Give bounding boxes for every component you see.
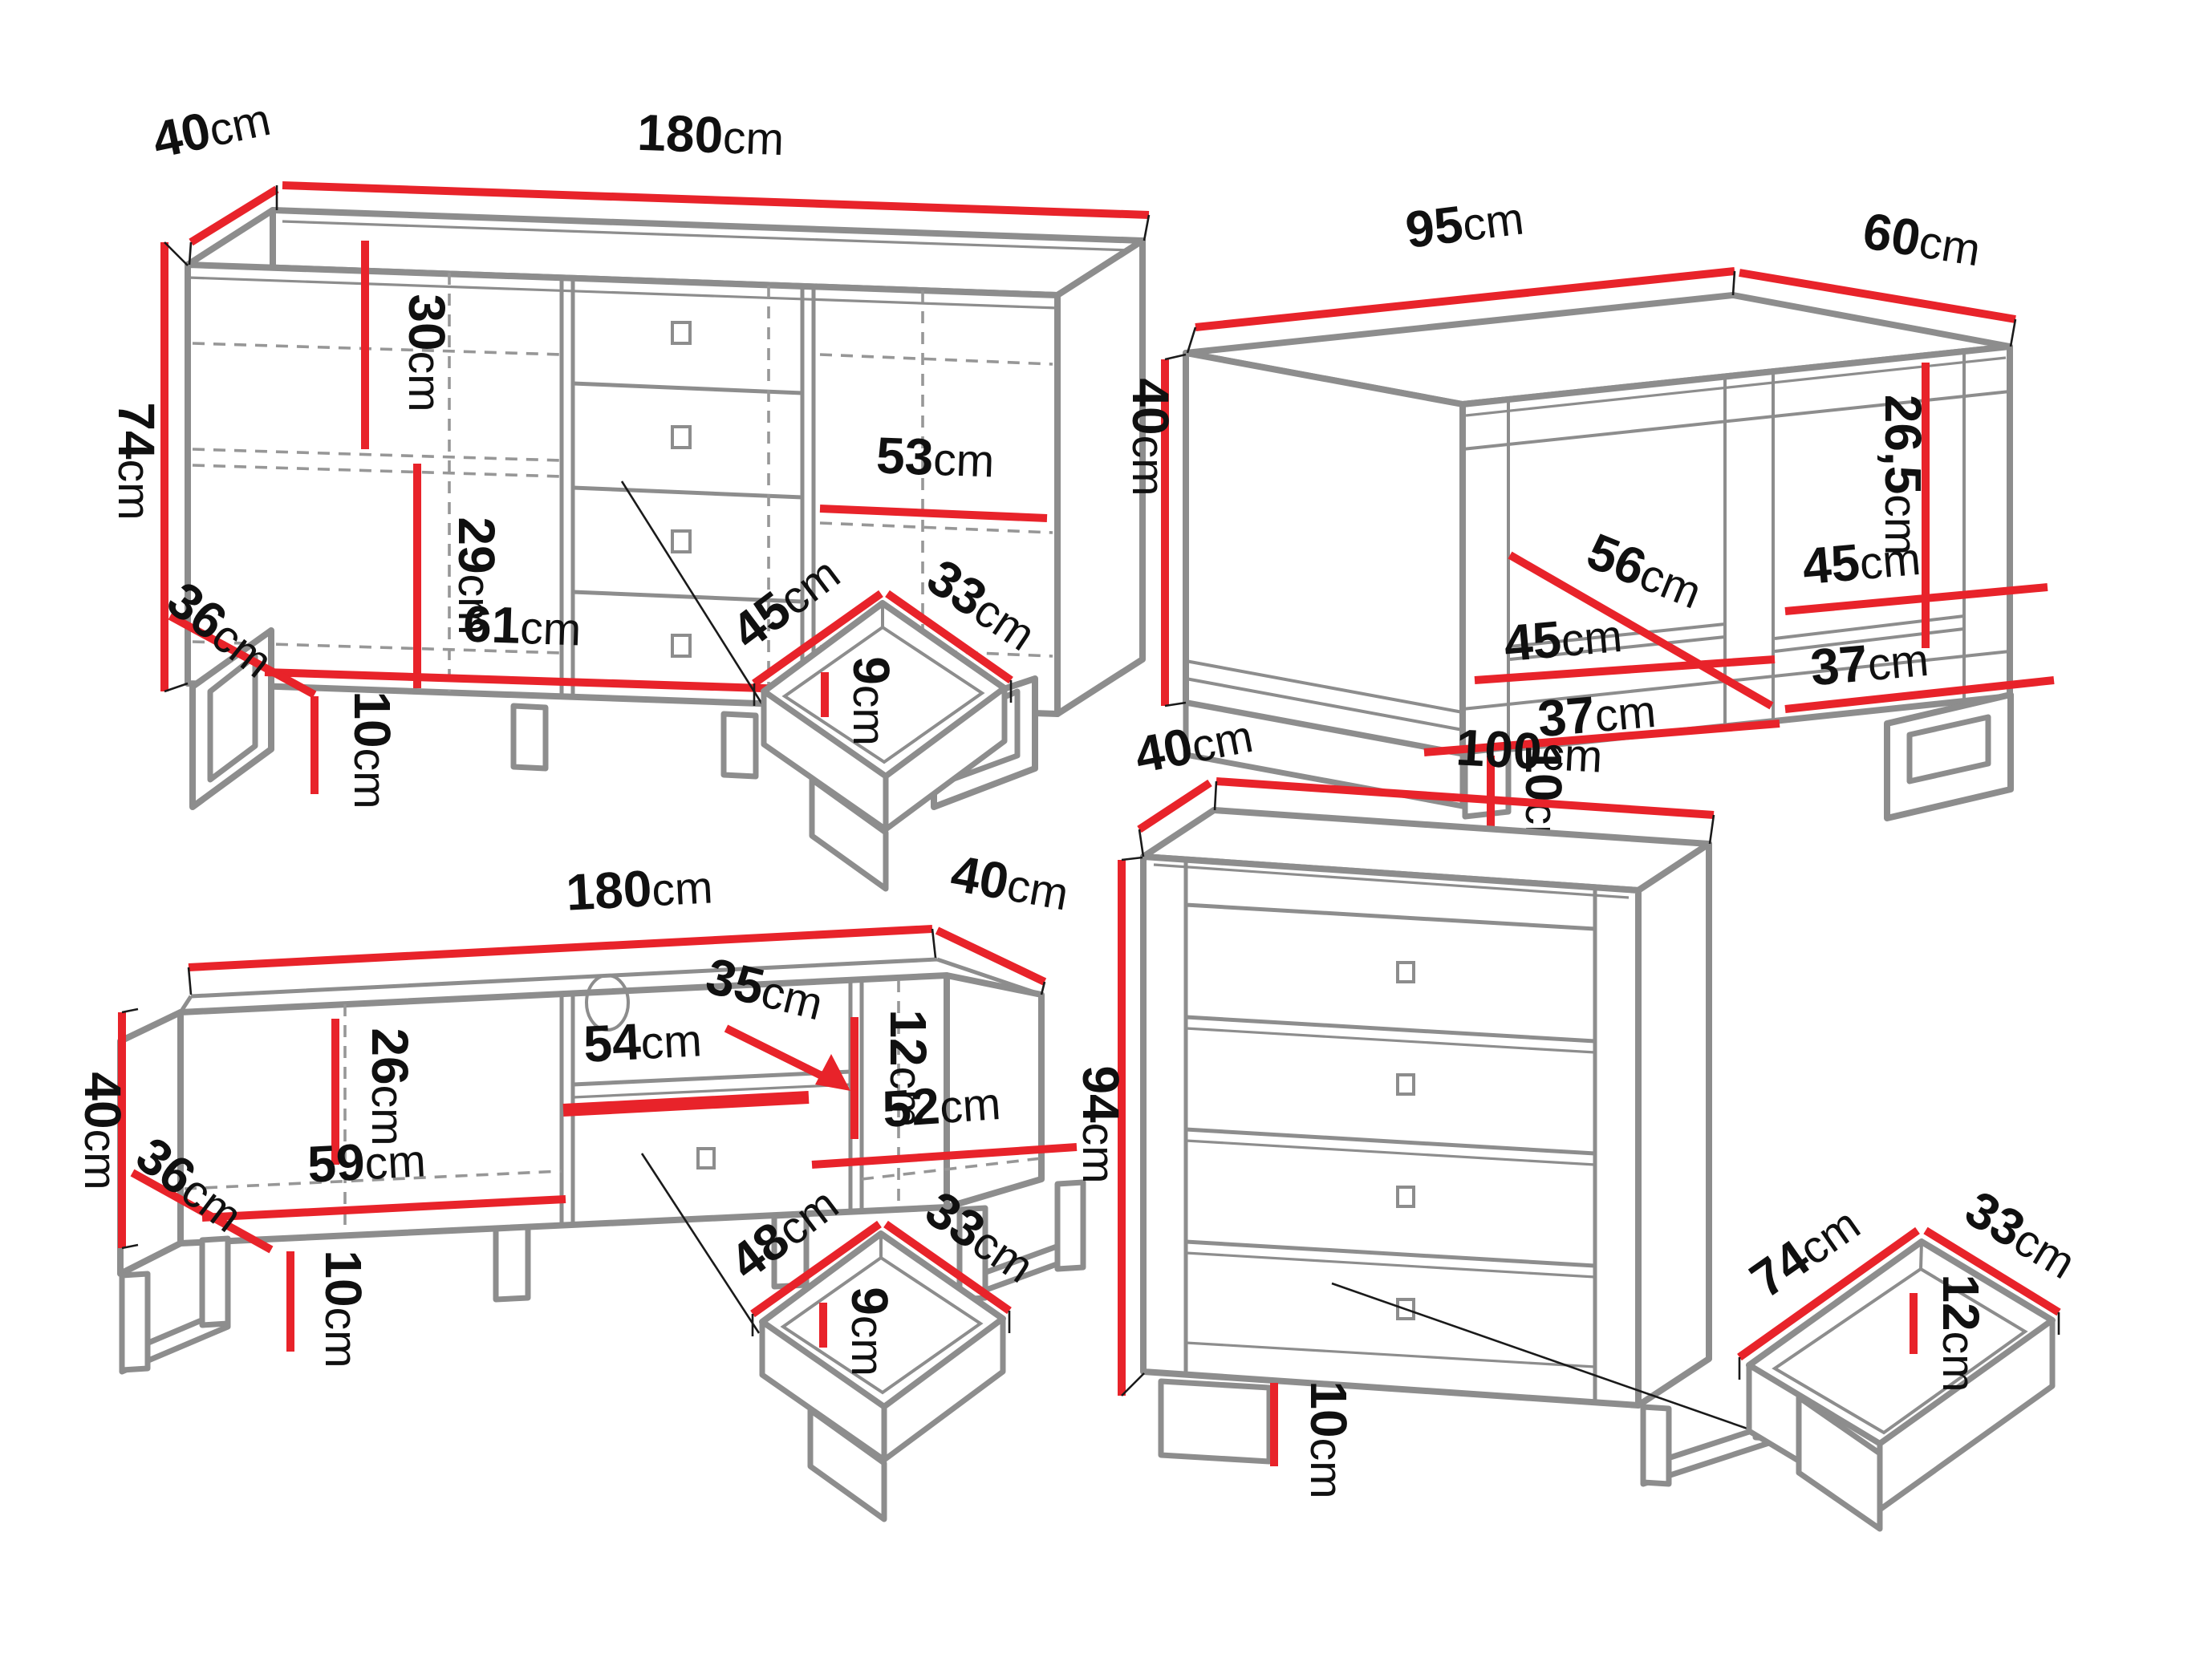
dim-label-sideboard-width: 180cm — [636, 103, 785, 166]
tv-stand-left-sled-post-back — [202, 1238, 228, 1325]
dim-label-chest-height: 94cm — [1072, 1065, 1130, 1183]
dim-label-coffee-right-bottom: 37cm — [1808, 629, 1931, 697]
sideboard-middle-foot-2 — [724, 714, 756, 776]
chest-drawer-handle-2 — [1398, 1075, 1414, 1094]
dim-label-coffee-depth: 60cm — [1859, 201, 1985, 277]
diagram-svg: 40cm 180cm 74cm 30cm 29cm 61cm 36cm 10cm… — [0, 0, 2212, 1658]
dim-label-drawer3-height: 12cm — [1932, 1274, 1990, 1392]
dim-label-coffee-right-shelf: 45cm — [1800, 528, 1923, 596]
dim-label-tv-width: 180cm — [565, 856, 714, 921]
tv-stand-left-sled-post-front — [122, 1274, 148, 1370]
dim-label-coffee-height: 40cm — [1122, 378, 1179, 496]
sideboard-drawer-handle-2 — [672, 427, 690, 448]
dim-label-sideboard-inner-top: 30cm — [398, 294, 456, 411]
furniture-dimensions-diagram: 40cm 180cm 74cm 30cm 29cm 61cm 36cm 10cm… — [0, 0, 2212, 1658]
dim-label-tv-depth: 40cm — [947, 844, 1073, 921]
dim-label-coffee-left-shelf: 45cm — [1502, 605, 1625, 673]
dim-label-chest-leg: 10cm — [1300, 1380, 1358, 1498]
chest-left-foot — [1161, 1381, 1269, 1461]
dim-label-tv-inner-height: 26cm — [361, 1028, 419, 1145]
dim-label-sideboard-shelf: 53cm — [875, 426, 996, 488]
chest-diagram: 40cm 100cm 94cm 10cm — [1072, 705, 1809, 1499]
chest-drawer-handle-3 — [1398, 1187, 1414, 1206]
drawer3-corner-joint — [1921, 1242, 1922, 1269]
dim-label-drawer1-height: 9cm — [842, 656, 900, 746]
dim-label-tv-leg: 10cm — [315, 1250, 372, 1368]
tv-stand-middle-foot-1 — [496, 1227, 528, 1299]
sideboard-drawer-handle-4 — [672, 635, 690, 656]
dim-label-tv-height: 40cm — [74, 1072, 132, 1190]
chest-drawer-handle-1 — [1398, 963, 1414, 982]
dim-label-drawer2-height: 9cm — [841, 1287, 899, 1376]
sideboard-drawer-handle-1 — [672, 322, 690, 343]
tv-stand-drawer-handle — [698, 1149, 714, 1168]
dim-label-sideboard-bottom-width: 61cm — [462, 594, 582, 656]
dimension-line-sideboard-width — [282, 185, 1149, 215]
dim-label-tv-shelf-width: 54cm — [582, 1009, 703, 1073]
chest-right-sled-post-front — [1643, 1407, 1669, 1484]
coffee-table-left-panel — [1186, 353, 1463, 754]
dimension-line-tv-width — [189, 929, 932, 967]
dim-label-coffee-inner-height: 26,5cm — [1874, 395, 1932, 556]
dim-label-tv-right-bottom: 52cm — [881, 1072, 1003, 1138]
sideboard-drawer-handle-3 — [672, 531, 690, 552]
dim-label-sideboard-depth: 40cm — [148, 88, 275, 169]
chest-right-face — [1638, 844, 1709, 1405]
dim-label-coffee-width: 95cm — [1402, 187, 1527, 258]
dim-label-sideboard-height: 74cm — [108, 402, 165, 520]
tv-stand-drawer-detail: 48cm 33cm 9cm — [719, 1174, 1045, 1519]
dim-label-sideboard-leg: 10cm — [343, 691, 401, 809]
sideboard-middle-foot-1 — [513, 706, 546, 768]
chest-drawer-detail: 74cm 33cm 12cm — [1739, 1179, 2087, 1529]
dim-label-tv-left-bottom: 59cm — [306, 1129, 427, 1194]
tv-stand-right-sled-post-back — [1057, 1182, 1083, 1269]
